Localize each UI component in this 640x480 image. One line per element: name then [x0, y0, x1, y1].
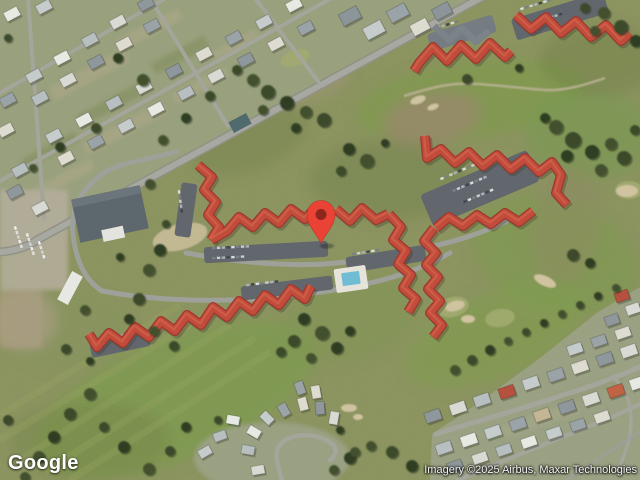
map-viewport[interactable]: Google Imagery ©2025 Airbus, Maxar Techn… [0, 0, 640, 480]
imagery-attribution: Imagery ©2025 Airbus, Maxar Technologies [424, 464, 637, 476]
google-logo[interactable]: Google [8, 452, 79, 475]
pin-shadow [320, 243, 334, 248]
satellite-canvas [0, 0, 640, 480]
